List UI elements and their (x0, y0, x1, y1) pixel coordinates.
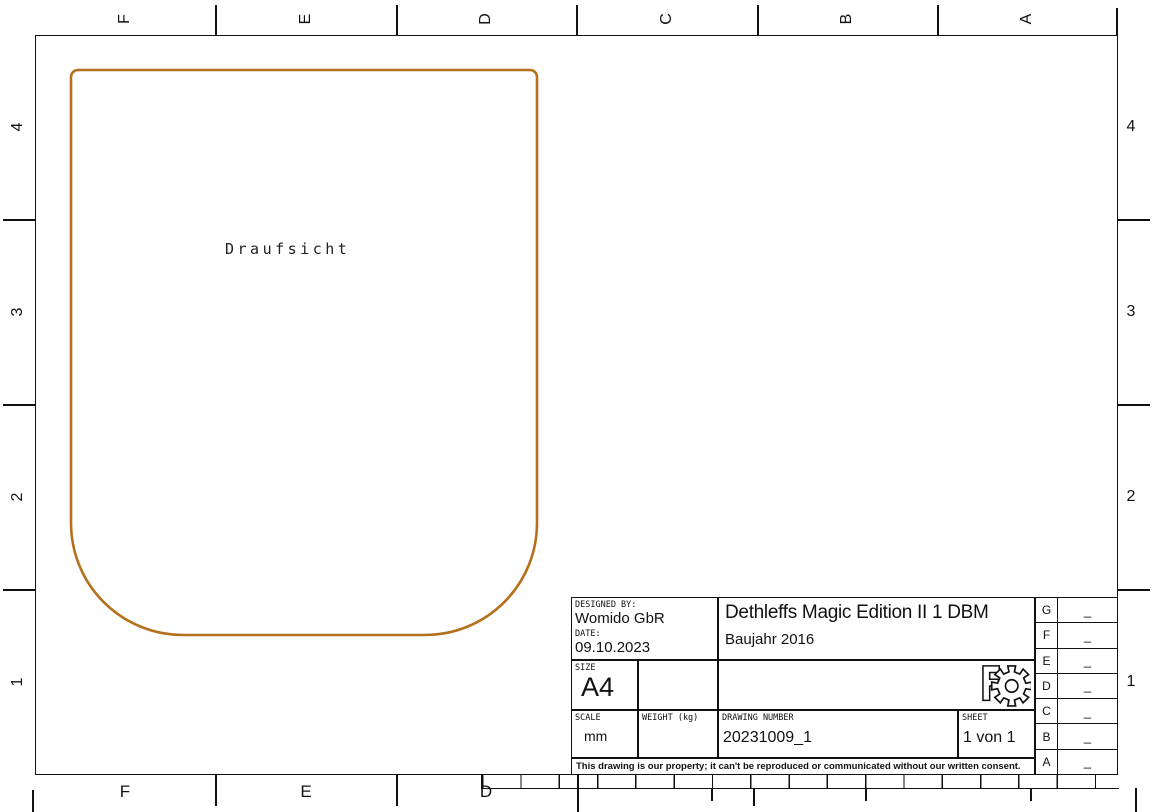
revision-value: _ (1058, 598, 1117, 622)
empty-cell (638, 660, 718, 710)
revision-row: G _ (1036, 598, 1117, 623)
revision-value: _ (1058, 724, 1117, 748)
sheet-cell: SHEET 1 von 1 (958, 710, 1035, 758)
revision-value: _ (1058, 623, 1117, 647)
drawing-number-value: 20231009_1 (719, 723, 957, 747)
revision-zone: D (1036, 674, 1058, 698)
designed-by-label: DESIGNED BY: (572, 598, 717, 610)
revision-zone: G (1036, 598, 1058, 622)
revision-row: C _ (1036, 699, 1117, 724)
revision-row: D _ (1036, 674, 1117, 699)
revision-zone: F (1036, 623, 1058, 647)
title-cell: Dethleffs Magic Edition II 1 DBM Baujahr… (718, 597, 1035, 660)
scale-cell: SCALE mm (571, 710, 638, 758)
revision-value: _ (1058, 699, 1117, 723)
revision-table: G _ F _ E _ D _ C _ B _ (1035, 597, 1118, 775)
revision-value: _ (1058, 674, 1117, 698)
weight-cell: WEIGHT (kg) (638, 710, 718, 758)
title-block: DESIGNED BY: Womido GbR DATE: 09.10.2023… (571, 597, 1118, 775)
scale-value: mm (572, 723, 637, 744)
sheet-label: SHEET (959, 711, 1034, 723)
disclaimer-cell: This drawing is our property; it can't b… (571, 758, 1035, 775)
revision-zone: E (1036, 649, 1058, 673)
drawing-sheet: F E D C B A F E D 4 3 2 1 4 3 2 1 Draufs… (0, 0, 1153, 812)
revision-zone: B (1036, 724, 1058, 748)
logo-cell (718, 660, 1035, 710)
revision-zone: C (1036, 699, 1058, 723)
designed-by-cell: DESIGNED BY: Womido GbR DATE: 09.10.2023 (571, 597, 718, 660)
weight-label: WEIGHT (kg) (639, 711, 717, 723)
revision-row: F _ (1036, 623, 1117, 648)
designed-by-value: Womido GbR (572, 610, 717, 627)
size-cell: SIZE A4 (571, 660, 638, 710)
drawing-number-cell: DRAWING NUMBER 20231009_1 (718, 710, 958, 758)
outline-path (71, 70, 537, 635)
drawing-subtitle: Baujahr 2016 (719, 624, 1034, 648)
freecad-gear-logo-icon (979, 662, 1031, 708)
revision-zone: A (1036, 750, 1058, 774)
revision-row: B _ (1036, 724, 1117, 749)
revision-row: E _ (1036, 649, 1117, 674)
revision-value: _ (1058, 649, 1117, 673)
date-value: 09.10.2023 (572, 639, 717, 656)
scale-label: SCALE (572, 711, 637, 723)
disclaimer-text: This drawing is our property; it can't b… (572, 759, 1034, 774)
revision-value: _ (1058, 750, 1117, 774)
size-value: A4 (572, 673, 637, 702)
date-label: DATE: (572, 627, 717, 639)
revision-row: A _ (1036, 750, 1117, 774)
drawing-number-label: DRAWING NUMBER (719, 711, 957, 723)
drawing-title: Dethleffs Magic Edition II 1 DBM (719, 598, 1034, 624)
sheet-value: 1 von 1 (959, 723, 1034, 747)
weight-value (639, 723, 717, 728)
view-title: Draufsicht (225, 240, 350, 258)
